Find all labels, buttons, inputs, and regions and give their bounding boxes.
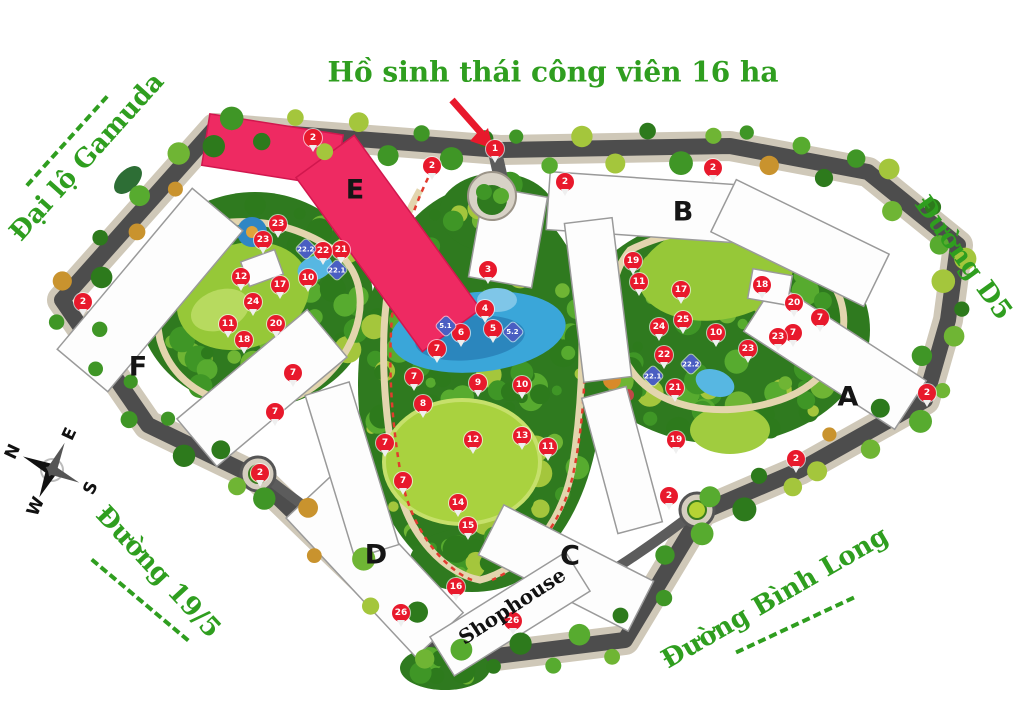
- compass-s: S: [79, 478, 102, 498]
- map-marker-2: 2: [660, 487, 678, 505]
- map-marker-14: 14: [449, 494, 467, 512]
- map-marker-26: 26: [392, 604, 410, 622]
- map-marker-23: 23: [769, 328, 787, 346]
- map-marker-2: 2: [918, 384, 936, 402]
- map-marker-7: 7: [266, 403, 284, 421]
- map-marker-7: 7: [394, 472, 412, 490]
- map-marker-2: 2: [787, 450, 805, 468]
- map-marker-19: 19: [667, 431, 685, 449]
- map-marker-10: 10: [707, 324, 725, 342]
- map-marker-22: 22: [314, 242, 332, 260]
- map-marker-10: 10: [513, 376, 531, 394]
- map-marker-4: 4: [476, 300, 494, 318]
- map-marker-18: 18: [235, 331, 253, 349]
- map-marker-25: 25: [674, 311, 692, 329]
- map-marker-3: 3: [479, 261, 497, 279]
- map-marker-23: 23: [269, 215, 287, 233]
- map-marker-22: 22: [655, 346, 673, 364]
- map-marker-21: 21: [332, 241, 350, 259]
- map-marker-15: 15: [459, 517, 477, 535]
- map-marker-2: 2: [304, 129, 322, 147]
- map-marker-24: 24: [244, 293, 262, 311]
- map-marker-7: 7: [376, 434, 394, 452]
- map-marker-7: 7: [428, 340, 446, 358]
- map-marker-2: 2: [423, 157, 441, 175]
- building-label-c: C: [560, 541, 580, 572]
- map-marker-7: 7: [284, 364, 302, 382]
- map-marker-11: 11: [219, 315, 237, 333]
- building-label-f: F: [129, 352, 147, 383]
- map-marker-7: 7: [811, 309, 829, 327]
- map-marker-12: 12: [464, 431, 482, 449]
- map-marker-20: 20: [267, 315, 285, 333]
- building-label-a: A: [838, 382, 859, 413]
- map-marker-17: 17: [672, 281, 690, 299]
- map-marker-19: 19: [624, 252, 642, 270]
- map-marker-21: 21: [666, 379, 684, 397]
- site-plan-page: N E S W Hồ sinh thái công viên 16 ha Đại…: [0, 0, 1024, 712]
- map-marker-5: 5: [484, 320, 502, 338]
- map-marker-8: 8: [414, 395, 432, 413]
- map-marker-23: 23: [254, 231, 272, 249]
- map-title: Hồ sinh thái công viên 16 ha: [327, 56, 778, 89]
- building-label-d: D: [365, 540, 387, 571]
- map-marker-1: 1: [486, 140, 504, 158]
- map-marker-13: 13: [513, 427, 531, 445]
- map-marker-2: 2: [74, 293, 92, 311]
- map-marker-2: 2: [251, 464, 269, 482]
- map-marker-2: 2: [704, 159, 722, 177]
- map-marker-18: 18: [753, 276, 771, 294]
- map-marker-11: 11: [539, 438, 557, 456]
- map-marker-20: 20: [785, 294, 803, 312]
- compass-w: W: [23, 494, 49, 520]
- building-label-b: B: [673, 197, 694, 228]
- map-marker-24: 24: [650, 318, 668, 336]
- map-marker-10: 10: [299, 269, 317, 287]
- map-marker-7: 7: [405, 368, 423, 386]
- compass-e: E: [58, 425, 81, 444]
- compass-n: N: [1, 441, 25, 462]
- map-marker-2: 2: [556, 173, 574, 191]
- map-marker-23: 23: [739, 340, 757, 358]
- map-marker-12: 12: [232, 268, 250, 286]
- map-marker-17: 17: [271, 276, 289, 294]
- building-label-e: E: [346, 175, 364, 206]
- map-marker-9: 9: [469, 374, 487, 392]
- map-marker-16: 16: [447, 578, 465, 596]
